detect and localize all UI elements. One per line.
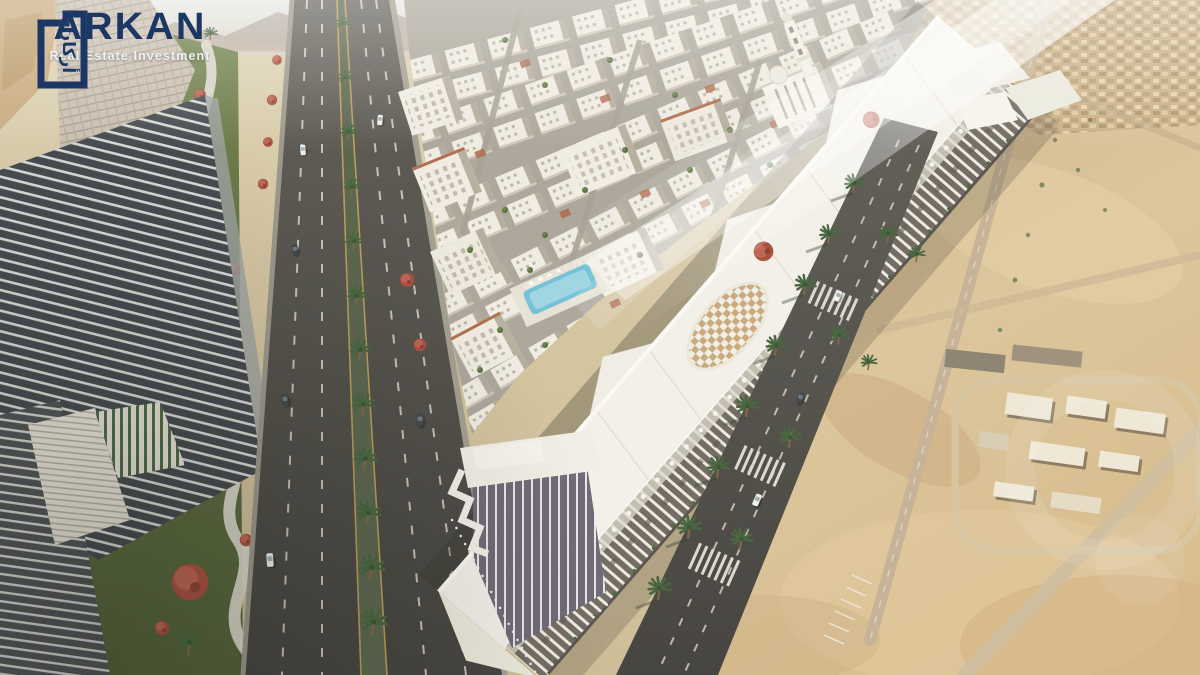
arkan-logo: أركان ARKAN Real Estate Investment <box>30 8 230 63</box>
sun-glare <box>0 0 1200 675</box>
scene-illustration <box>0 0 1200 675</box>
aerial-masterplan-render: أركان ARKAN Real Estate Investment <box>0 0 1200 675</box>
arkan-wordmark: ARKAN <box>26 8 234 46</box>
